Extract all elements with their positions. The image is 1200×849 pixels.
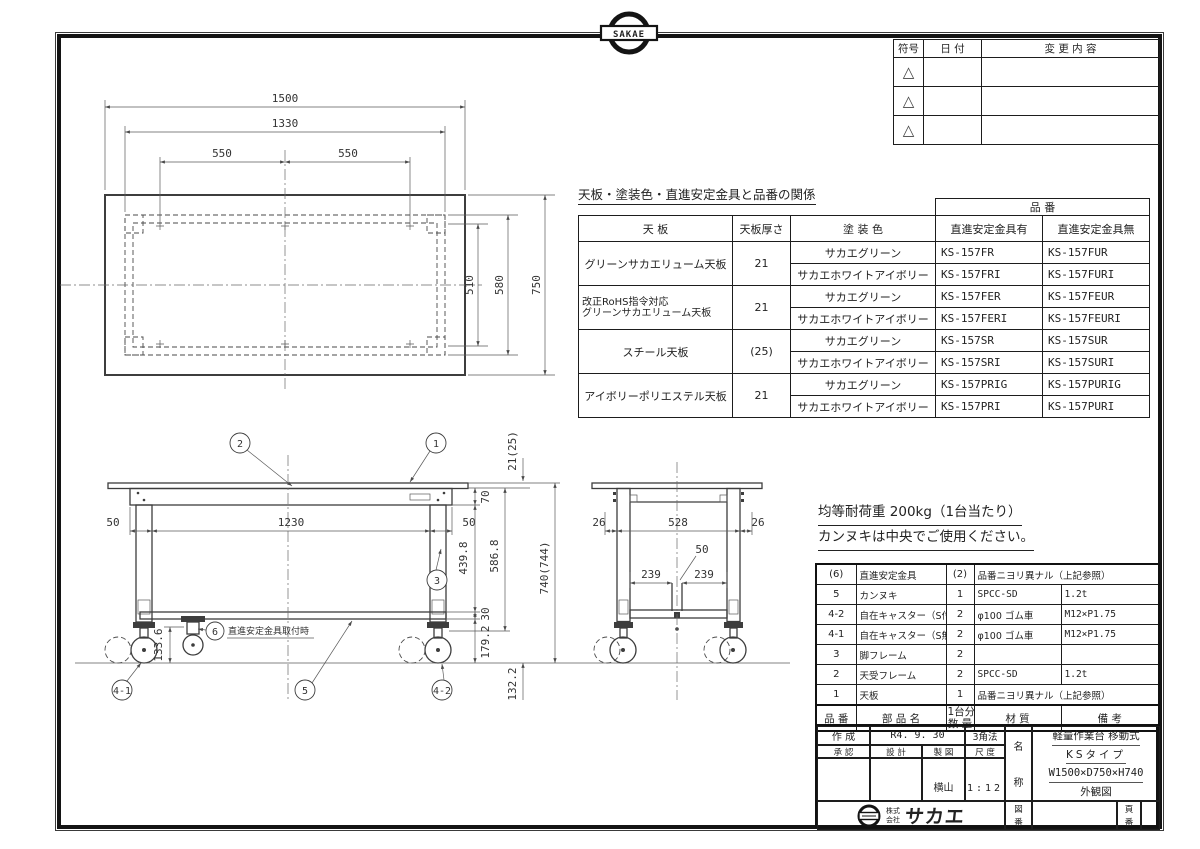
part-no: 4-2: [816, 605, 856, 625]
part-no: 3: [816, 645, 856, 665]
design-value: [870, 758, 922, 801]
revision-date-cell: [924, 58, 982, 87]
created-label: 作 成: [817, 726, 870, 745]
dim-front-ground: 132.2: [506, 667, 519, 700]
drawing-no-value: [1032, 801, 1117, 830]
part-name: カンヌキ: [856, 585, 946, 605]
dim-plan-pitch-left: 550: [212, 147, 232, 160]
dim-front-side-right: 50: [462, 516, 475, 529]
dim-side-right: 26: [751, 516, 764, 529]
product-number-with: KS-157FRI: [936, 264, 1043, 286]
company-name: サカエ: [904, 802, 967, 829]
balloon-6: 6: [212, 627, 218, 638]
revision-marker-icon: △: [894, 58, 924, 87]
drawing-no-char1: 図: [1014, 803, 1023, 815]
part-no: (6): [816, 564, 856, 585]
product-name-line4: 外観図: [1080, 783, 1112, 801]
product-color: サカエホワイトアイボリー: [791, 396, 936, 418]
note-kannuki: カンヌキは中央でご使用ください。: [818, 526, 1034, 551]
product-name-line2: KSタイプ: [1066, 746, 1126, 765]
part-material: φ100 ゴム車: [974, 625, 1061, 645]
product-table-spacer: [579, 199, 936, 216]
part-remarks: M12×P1.75: [1061, 605, 1159, 625]
page-no-label: 頁 番: [1117, 801, 1141, 830]
part-qty: 1: [946, 585, 974, 605]
part-qty: 2: [946, 625, 974, 645]
note-load-capacity: 均等耐荷重 200kg（1台当たり）: [818, 501, 1022, 526]
part-material: 品番ニヨリ異ナル（上記参照）: [974, 564, 1159, 585]
product-number-with: KS-157SR: [936, 330, 1043, 352]
revision-marker-icon: △: [894, 87, 924, 116]
created-date: R4. 9. 30: [870, 726, 965, 745]
dim-plan-width-frame: 1330: [272, 117, 299, 130]
product-number-without: KS-157FEURI: [1043, 308, 1150, 330]
dim-front-leg: 439.8: [457, 541, 470, 574]
dim-front-bar: 30: [479, 607, 492, 620]
part-qty: 2: [946, 645, 974, 665]
company-logo: 株式 会社 サカエ: [817, 801, 1005, 830]
plan-view: 1500 1330 550 550 510 580 750: [60, 92, 555, 392]
product-tenban: アイボリーポリエステル天板: [579, 374, 733, 418]
product-header-without: 直進安定金具無: [1043, 216, 1150, 242]
part-name: 天板: [856, 685, 946, 706]
product-header-color: 塗 装 色: [791, 216, 936, 242]
part-remarks: M12×P1.75: [1061, 625, 1159, 645]
page-no-char2: 番: [1125, 816, 1134, 828]
front-view: 50 1230 50 70 439.8 30 179.2 586.8 740(7…: [75, 431, 790, 700]
revision-change-cell: [982, 116, 1160, 145]
balloon-4-1: 4-1: [113, 686, 131, 697]
product-color: サカエホワイトアイボリー: [791, 264, 936, 286]
dim-side-gap: 50: [695, 543, 708, 556]
projection-method: 3角法: [965, 726, 1005, 745]
sakae-logo-icon: [857, 804, 881, 828]
product-header-hinban: 品 番: [936, 199, 1150, 216]
balloon-6-note: 直進安定金具取付時: [228, 625, 309, 637]
balloon-5: 5: [302, 686, 308, 697]
part-qty: (2): [946, 564, 974, 585]
stabilizer-fitting: [181, 616, 205, 655]
balloon-1: 1: [433, 439, 439, 450]
product-tenban-line1: 改正RoHS指令対応: [582, 297, 729, 308]
balloon-2: 2: [237, 439, 243, 450]
scale-label: 尺 度: [965, 745, 1005, 758]
scale-value: 1:12: [965, 758, 1005, 801]
design-label: 設 計: [870, 745, 922, 758]
product-thickness: 21: [733, 374, 791, 418]
dim-front-frame: 586.8: [488, 539, 501, 572]
part-qty: 1: [946, 685, 974, 706]
product-number-without: KS-157SURI: [1043, 352, 1150, 374]
side-view: 26 528 26 239 239 50: [592, 462, 765, 700]
dim-side-left: 26: [592, 516, 605, 529]
company-prefix: 株式 会社: [886, 807, 900, 823]
balloon-4-2: 4-2: [433, 686, 451, 697]
dim-front-apron: 70: [479, 490, 492, 503]
product-number-without: KS-157PURI: [1043, 396, 1150, 418]
part-material: SPCC-SD: [974, 665, 1061, 685]
dim-plan-depth-inner: 510: [463, 275, 476, 295]
part-no: 4-1: [816, 625, 856, 645]
dim-front-total: 740(744): [538, 542, 551, 595]
dim-plan-pitch-right: 550: [338, 147, 358, 160]
name-label-char2: 称: [1014, 774, 1024, 789]
product-number-without: KS-157PURIG: [1043, 374, 1150, 396]
part-name: 脚フレーム: [856, 645, 946, 665]
dim-plan-width-total: 1500: [272, 92, 299, 105]
part-material: SPCC-SD: [974, 585, 1061, 605]
product-number-with: KS-157PRIG: [936, 374, 1043, 396]
company-prefix-line2: 会社: [886, 816, 900, 824]
product-tenban-line2: グリーンサカエリューム天板: [582, 308, 729, 319]
parts-list-table: (6) 直進安定金具 (2) 品番ニヨリ異ナル（上記参照） 5 カンヌキ 1 S…: [815, 563, 1160, 732]
product-tenban: 改正RoHS指令対応 グリーンサカエリューム天板: [579, 286, 733, 330]
part-remarks: 1.2t: [1061, 665, 1159, 685]
revision-col-date: 日 付: [924, 40, 982, 58]
dim-front-stabilizer: 133.6: [152, 628, 165, 661]
product-color: サカエグリーン: [791, 374, 936, 396]
part-qty: 2: [946, 605, 974, 625]
product-number-with: KS-157FER: [936, 286, 1043, 308]
product-thickness: 21: [733, 242, 791, 286]
product-table: 品 番 天 板 天板厚さ 塗 装 色 直進安定金具有 直進安定金具無 グリーンサ…: [578, 198, 1150, 418]
revision-col-change: 変 更 内 容: [982, 40, 1160, 58]
part-name: 天受フレーム: [856, 665, 946, 685]
dim-side-span: 528: [668, 516, 688, 529]
part-name: 自在キャスター（S付）: [856, 605, 946, 625]
product-number-without: KS-157FUR: [1043, 242, 1150, 264]
product-color: サカエホワイトアイボリー: [791, 352, 936, 374]
part-no: 1: [816, 685, 856, 706]
product-thickness: 21: [733, 286, 791, 330]
product-number-without: KS-157FURI: [1043, 264, 1150, 286]
drawing-sheet: SAKAE 1500: [0, 0, 1200, 849]
page-no-value: [1141, 801, 1160, 830]
drawing-no-char2: 番: [1014, 816, 1023, 828]
part-remarks: 1.2t: [1061, 585, 1159, 605]
product-color: サカエグリーン: [791, 286, 936, 308]
product-thickness: (25): [733, 330, 791, 374]
dim-plan-depth-frame: 580: [493, 275, 506, 295]
load-notes: 均等耐荷重 200kg（1台当たり） カンヌキは中央でご使用ください。: [818, 501, 1034, 551]
product-number-with: KS-157SRI: [936, 352, 1043, 374]
dim-front-top-thickness: 21(25): [506, 431, 519, 471]
part-remarks: [1061, 645, 1159, 665]
product-tenban: スチール天板: [579, 330, 733, 374]
company-prefix-line1: 株式: [886, 807, 900, 815]
product-name-line3: W1500×D750×H740: [1049, 764, 1144, 783]
approve-label: 承 認: [817, 745, 870, 758]
revision-change-cell: [982, 87, 1160, 116]
product-color: サカエホワイトアイボリー: [791, 308, 936, 330]
product-number-with: KS-157FERI: [936, 308, 1043, 330]
revision-marker-icon: △: [894, 116, 924, 145]
product-number-with: KS-157FR: [936, 242, 1043, 264]
product-color: サカエグリーン: [791, 330, 936, 352]
sakae-badge-icon: SAKAE: [601, 14, 657, 52]
dim-plan-depth-total: 750: [530, 275, 543, 295]
drafter-name: 横山: [922, 758, 965, 801]
product-number-with: KS-157PRI: [936, 396, 1043, 418]
name-label-char1: 名: [1014, 738, 1024, 753]
drawing-no-label: 図 番: [1005, 801, 1032, 830]
revision-col-symbol: 符号: [894, 40, 924, 58]
part-no: 5: [816, 585, 856, 605]
product-name-block: 軽量作業台 移動式 KSタイプ W1500×D750×H740 外観図: [1032, 726, 1160, 801]
product-header-tenban: 天 板: [579, 216, 733, 242]
part-material: [974, 645, 1061, 665]
part-name: 直進安定金具: [856, 564, 946, 585]
product-color: サカエグリーン: [791, 242, 936, 264]
product-number-without: KS-157SUR: [1043, 330, 1150, 352]
part-qty: 2: [946, 665, 974, 685]
part-no: 2: [816, 665, 856, 685]
balloon-3: 3: [434, 576, 440, 587]
draft-label: 製 図: [922, 745, 965, 758]
dim-front-side-left: 50: [106, 516, 119, 529]
name-label: 名 称: [1005, 726, 1032, 801]
product-number-without: KS-157FEUR: [1043, 286, 1150, 308]
dim-front-span: 1230: [278, 516, 305, 529]
title-block: 作 成 R4. 9. 30 3角法 承 認 設 計 製 図 尺 度 横山 1:1…: [815, 724, 1158, 828]
product-name-line1: 軽量作業台 移動式: [1052, 727, 1139, 746]
revision-date-cell: [924, 87, 982, 116]
dim-side-half-right: 239: [694, 568, 714, 581]
product-tenban: グリーンサカエリューム天板: [579, 242, 733, 286]
parts-header-qty-line1: 1台分: [948, 706, 973, 718]
revision-change-cell: [982, 58, 1160, 87]
part-material: φ100 ゴム車: [974, 605, 1061, 625]
part-name: 自在キャスター（S無）: [856, 625, 946, 645]
dim-side-half-left: 239: [641, 568, 661, 581]
product-header-with: 直進安定金具有: [936, 216, 1043, 242]
product-header-thickness: 天板厚さ: [733, 216, 791, 242]
revision-table: 符号 日 付 変 更 内 容 △ △ △: [893, 39, 1160, 145]
approve-value: [817, 758, 870, 801]
revision-date-cell: [924, 116, 982, 145]
dim-front-lower: 179.2: [479, 625, 492, 658]
sakae-badge-text: SAKAE: [613, 30, 645, 40]
page-no-char1: 頁: [1125, 803, 1134, 815]
part-material: 品番ニヨリ異ナル（上記参照）: [974, 685, 1159, 706]
